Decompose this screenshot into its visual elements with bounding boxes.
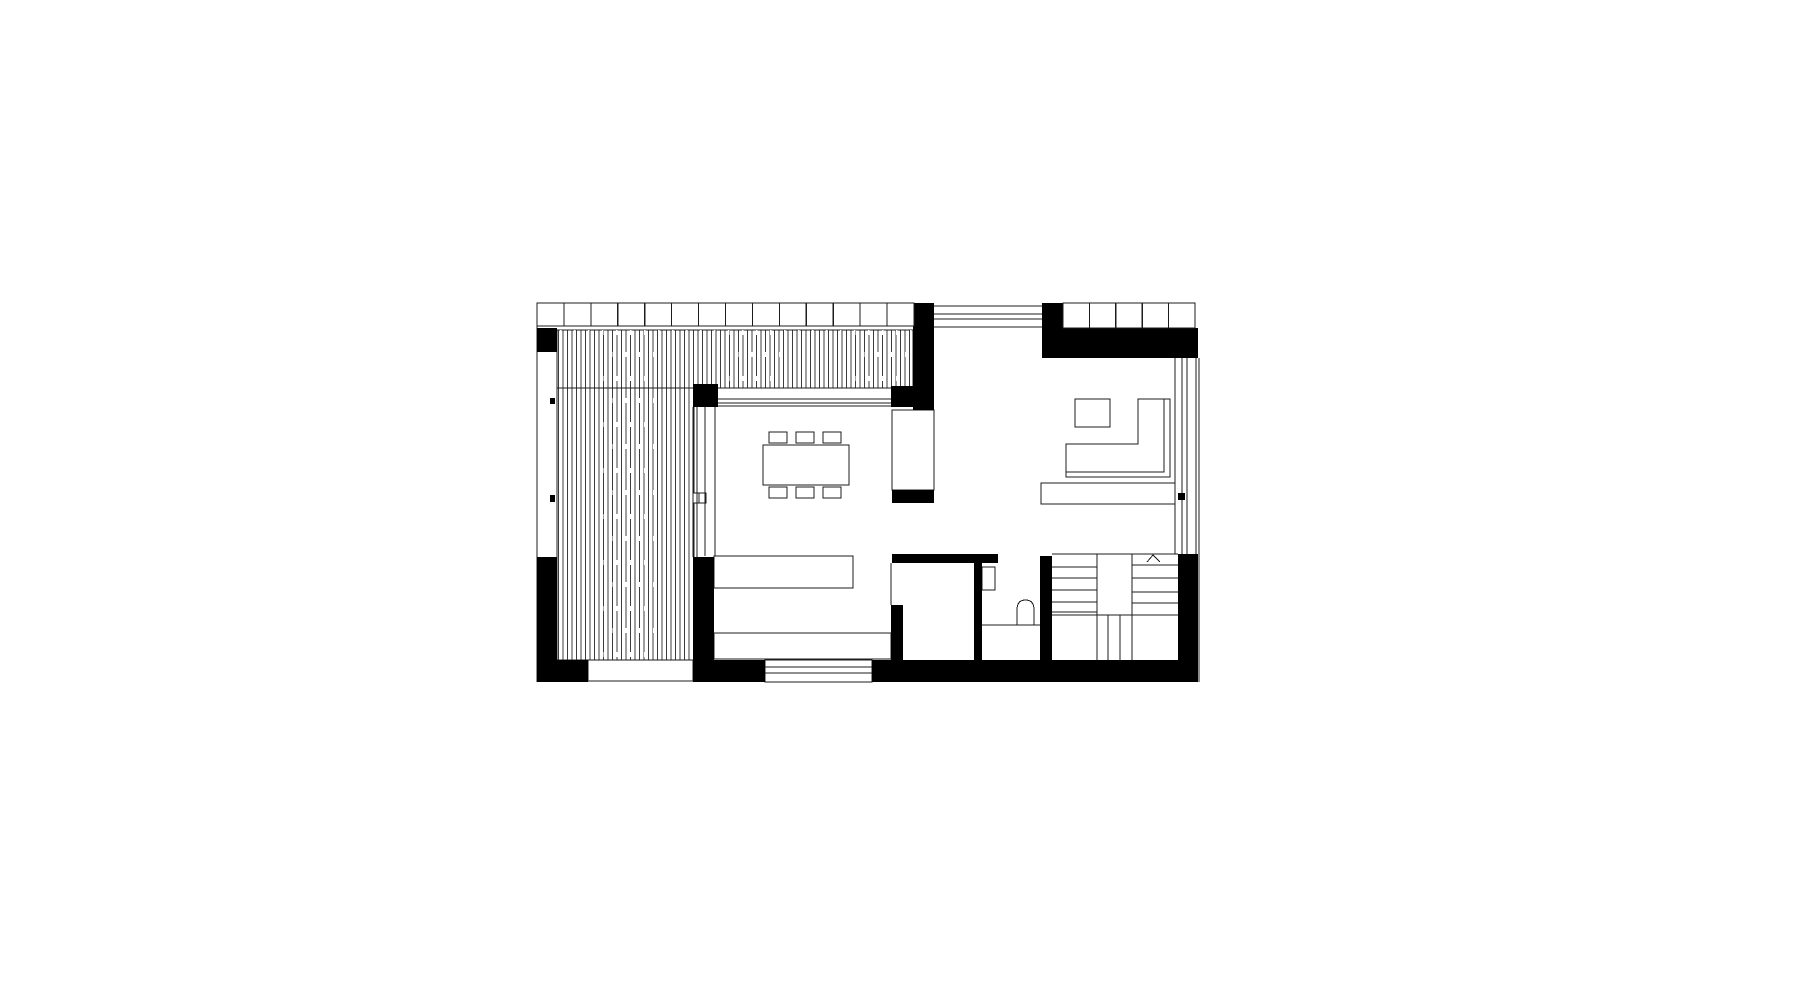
terrace-step (588, 660, 693, 681)
dining-chair (796, 432, 814, 443)
wall-hall-stub (892, 490, 934, 503)
dining-chair (823, 432, 841, 443)
toilet (1017, 600, 1034, 625)
wc-sink (982, 567, 995, 590)
wall-dining-stub-east (891, 386, 913, 407)
terrace-decking-west-gaps (557, 388, 694, 660)
dining-table (763, 445, 849, 485)
coffee-table (1075, 399, 1110, 427)
wall-top-right-column (1042, 303, 1063, 328)
wall-kitchen-west (693, 557, 714, 660)
wall-wc-west (974, 563, 982, 660)
terrace-decking-north-gaps (557, 330, 913, 388)
window-mullion-tick-lower (550, 495, 555, 502)
wall-top-left-block (537, 328, 557, 352)
terrace-layer (557, 330, 913, 660)
wall-terrace-dining-stub (693, 384, 718, 407)
wall-bottom-seg-east (872, 660, 1198, 682)
window-mullion-tick-upper (550, 398, 555, 404)
kitchen-island (714, 556, 853, 588)
wall-bottom-seg-west (693, 660, 765, 682)
dining-chair (823, 487, 841, 498)
wall-kitchen-east-lower (891, 605, 903, 660)
stair-direction-arrow (1147, 555, 1160, 562)
wall-dot-east (1178, 493, 1185, 500)
kitchen-counter (714, 633, 891, 659)
floor-plan-drawing (0, 0, 1801, 1001)
tv-sideboard (1041, 483, 1175, 504)
wall-wc-north (892, 554, 998, 563)
dining-chair (796, 487, 814, 498)
wall-stair-east (1178, 554, 1198, 662)
louver-roof-east (1063, 303, 1195, 328)
symbols-layer (1017, 399, 1170, 625)
south-window (765, 660, 872, 682)
wall-wc-east (1040, 556, 1052, 662)
dining-chair (769, 487, 787, 498)
dining-chair (769, 432, 787, 443)
floor-plan-page (0, 0, 1801, 1001)
wall-bottom-left-corner (537, 660, 588, 682)
louver-roof-layer (537, 303, 1195, 328)
tall-cabinet (892, 410, 934, 490)
wall-column-north (913, 303, 934, 410)
wall-top-right-band (1042, 328, 1198, 358)
